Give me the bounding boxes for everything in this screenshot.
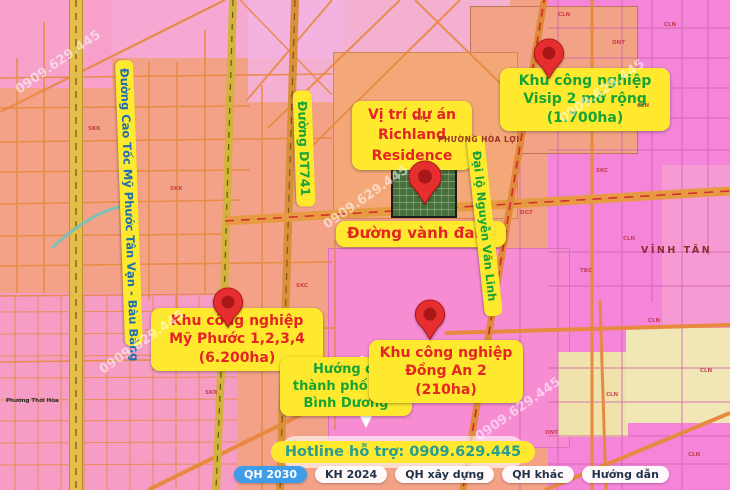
zone-code: TBC (580, 268, 592, 274)
zone-code: DGT (520, 210, 533, 216)
zone-code: SKK (88, 126, 101, 132)
planning-map[interactable]: Khu công nghiệp Visip 2 mở rộng (1.700ha… (0, 0, 730, 490)
map-pin-dong-an[interactable] (413, 299, 447, 341)
tab-kh-2024[interactable]: KH 2024 (315, 466, 387, 483)
zone-code: CLN (664, 22, 676, 28)
zone-code: ONT (545, 430, 558, 436)
zone-code: SKR (205, 390, 217, 396)
zone-code: CLN (558, 12, 570, 18)
map-pin-my-phuoc[interactable] (211, 287, 245, 329)
zone-code: SKC (296, 283, 308, 289)
label-dong-an-industrial-park: Khu công nghiệp Đồng An 2 (210ha) (369, 340, 523, 403)
ward-label-vinh-tan: VĨNH TÂN (641, 245, 712, 256)
zone-code: CLN (700, 368, 712, 374)
label-line: (1.700ha) (509, 109, 661, 127)
label-line: (210ha) (378, 381, 514, 399)
zone-code: CLN (413, 116, 425, 122)
ward-label-hoa-loi: PHƯỜNG HÒA LỢI (438, 135, 520, 144)
zone-code: CLN (606, 392, 618, 398)
tab-qh-khac[interactable]: QH khác (502, 466, 573, 483)
zone-code: CLN (637, 103, 649, 109)
zone-code: SKC (596, 168, 608, 174)
zone-code: CLN (648, 318, 660, 324)
hotline-text: Hotline hỗ trợ: 0909.629.445 (271, 441, 535, 463)
banner-dt741: Đường DT741 (292, 90, 315, 207)
label-line: Vị trí dự án (361, 105, 463, 125)
map-pin-richland[interactable] (406, 160, 444, 206)
tab-qh-2030[interactable]: QH 2030 (234, 466, 307, 483)
hotline-bar[interactable]: Hotline hỗ trợ: 0909.629.445 (280, 436, 526, 468)
label-line: Đồng An 2 (378, 362, 514, 380)
label-line: Mỹ Phước 1,2,3,4 (160, 330, 314, 348)
tab-huong-dan[interactable]: Hướng dẫn (582, 466, 669, 483)
ward-label-thoi-hoa: Phường Thới Hòa (6, 398, 59, 404)
zone-code: CLN (688, 452, 700, 458)
label-visip-industrial-park: Khu công nghiệp Visip 2 mở rộng (1.700ha… (500, 68, 670, 131)
tab-qh-xay-dung[interactable]: QH xây dựng (395, 466, 494, 483)
layer-tabs: QH 2030 KH 2024 QH xây dựng QH khác Hướn… (234, 466, 669, 483)
zone-code: CLN (623, 236, 635, 242)
zone-code: SKK (170, 186, 183, 192)
map-pin-visip[interactable] (532, 38, 566, 80)
zone-code: ONT (612, 40, 625, 46)
label-line: Khu công nghiệp (378, 344, 514, 362)
